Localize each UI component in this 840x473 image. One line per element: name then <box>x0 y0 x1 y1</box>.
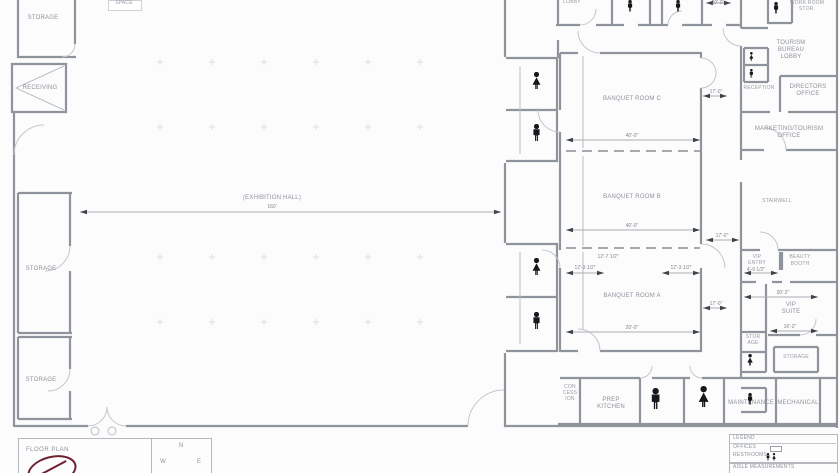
room-label-storage-bottom-right: STORAGE <box>783 355 809 361</box>
room-label-beauty-2: BOOTH <box>791 262 810 268</box>
room-label-directors-1: DIRECTORS <box>789 84 826 91</box>
legend-note: AISLE MEASUREMENTS <box>733 464 794 470</box>
dim-partition-right: 12'-3 1/2" <box>670 265 691 271</box>
woman-restroom-icon <box>749 52 754 61</box>
room-label-mechanical: MECHANICAL <box>777 400 818 407</box>
woman-restroom-icon <box>532 72 541 89</box>
dim-top-right: 20'-0" <box>712 0 725 6</box>
dim-corridor-bottom: 17'-0" <box>710 301 723 307</box>
room-label-vip-entry-2: ENTRY <box>748 261 766 267</box>
compass-n-label: N <box>179 443 183 449</box>
dim-banquet-c: 40'-0" <box>626 133 639 139</box>
room-label-prep-kitchen-2: KITCHEN <box>597 404 625 411</box>
man-restroom-icon <box>532 124 541 141</box>
legend-restrooms-label: RESTROOMS <box>733 452 767 458</box>
dim-partition-center: 12'-7 1/2" <box>597 254 618 260</box>
room-label-marketing-2: OFFICE <box>777 133 800 140</box>
room-label-vip-suite-2: SUITE <box>782 309 801 316</box>
room-label-prep-kitchen-1: PREP <box>602 397 619 404</box>
man-restroom-icon <box>627 0 633 12</box>
room-label-beauty-1: BEAUTY <box>789 255 810 261</box>
dim-banquet-b: 40'-0" <box>626 223 639 229</box>
dim-partition-left: 12'-3 1/2" <box>574 265 595 271</box>
room-label-banquet-c: BANQUET ROOM C <box>603 96 661 103</box>
dim-corridor-mid: 17'-0" <box>716 233 729 239</box>
room-label-stairwell: STAIRWELL <box>762 199 792 205</box>
legend-offices-label: OFFICES <box>733 444 756 450</box>
room-label-concession-3: ION <box>565 397 575 403</box>
room-label-tourism-1: TOURISM <box>777 40 806 47</box>
room-label-space: SPACE <box>115 1 133 7</box>
man-restroom-icon <box>675 0 681 12</box>
man-restroom-icon <box>650 388 661 409</box>
floorplan-linework <box>0 0 840 473</box>
room-label-banquet-a: BANQUET ROOM A <box>603 293 660 300</box>
woman-restroom-icon <box>747 354 753 366</box>
room-label-work-room-2: STOR. <box>799 7 815 13</box>
room-label-marketing-1: MARKETING/TOURISM <box>755 126 823 133</box>
room-label-directors-2: OFFICE <box>796 91 819 98</box>
man-restroom-icon <box>766 453 770 461</box>
compass-e-label: E <box>197 459 201 465</box>
room-label-tourism-3: LOBBY <box>780 54 801 61</box>
floor-plan-canvas: SPACE STORAGE RECEIVING STORAGE STORAGE … <box>0 0 840 473</box>
office-symbol-icon <box>770 446 782 452</box>
woman-restroom-icon <box>772 453 776 461</box>
man-restroom-icon <box>749 69 754 78</box>
man-restroom-icon <box>747 393 753 405</box>
room-label-receiving: RECEIVING <box>23 85 58 92</box>
man-restroom-icon <box>532 312 541 329</box>
sheet-title: FLOOR PLAN <box>26 447 69 453</box>
dim-suite-width: 20'-2" <box>777 290 790 296</box>
woman-restroom-icon <box>698 386 709 407</box>
dim-banquet-a: 20'-0" <box>626 325 639 331</box>
room-label-tourism-2: BUREAU <box>778 47 804 54</box>
woman-restroom-icon <box>532 258 541 275</box>
legend-title: LEGEND <box>733 435 755 441</box>
dim-exhibition: 160' <box>267 204 276 210</box>
room-label-lobby-top: LOBBY <box>563 0 581 6</box>
room-label-storage-mid-left: STORAGE <box>26 266 57 273</box>
room-label-reception: RECEPTION <box>744 86 775 92</box>
dim-suite-height: 16'-2" <box>784 324 797 330</box>
man-restroom-icon <box>773 2 779 14</box>
room-label-storage-bottom-left: STORAGE <box>26 377 57 384</box>
room-label-vip-suite-1: VIP <box>786 302 796 309</box>
room-label-banquet-b: BANQUET ROOM B <box>603 194 661 201</box>
dim-vip-entry: 4'-9 1/2" <box>747 267 765 273</box>
compass-w-label: W <box>160 459 166 465</box>
dim-corridor-top: 17'-0" <box>710 89 723 95</box>
room-label-exhibition-hall: (EXHIBITION HALL) <box>243 195 301 202</box>
room-label-storage-right-2: AGE <box>747 341 758 347</box>
room-label-storage-top-left: STORAGE <box>28 15 59 22</box>
